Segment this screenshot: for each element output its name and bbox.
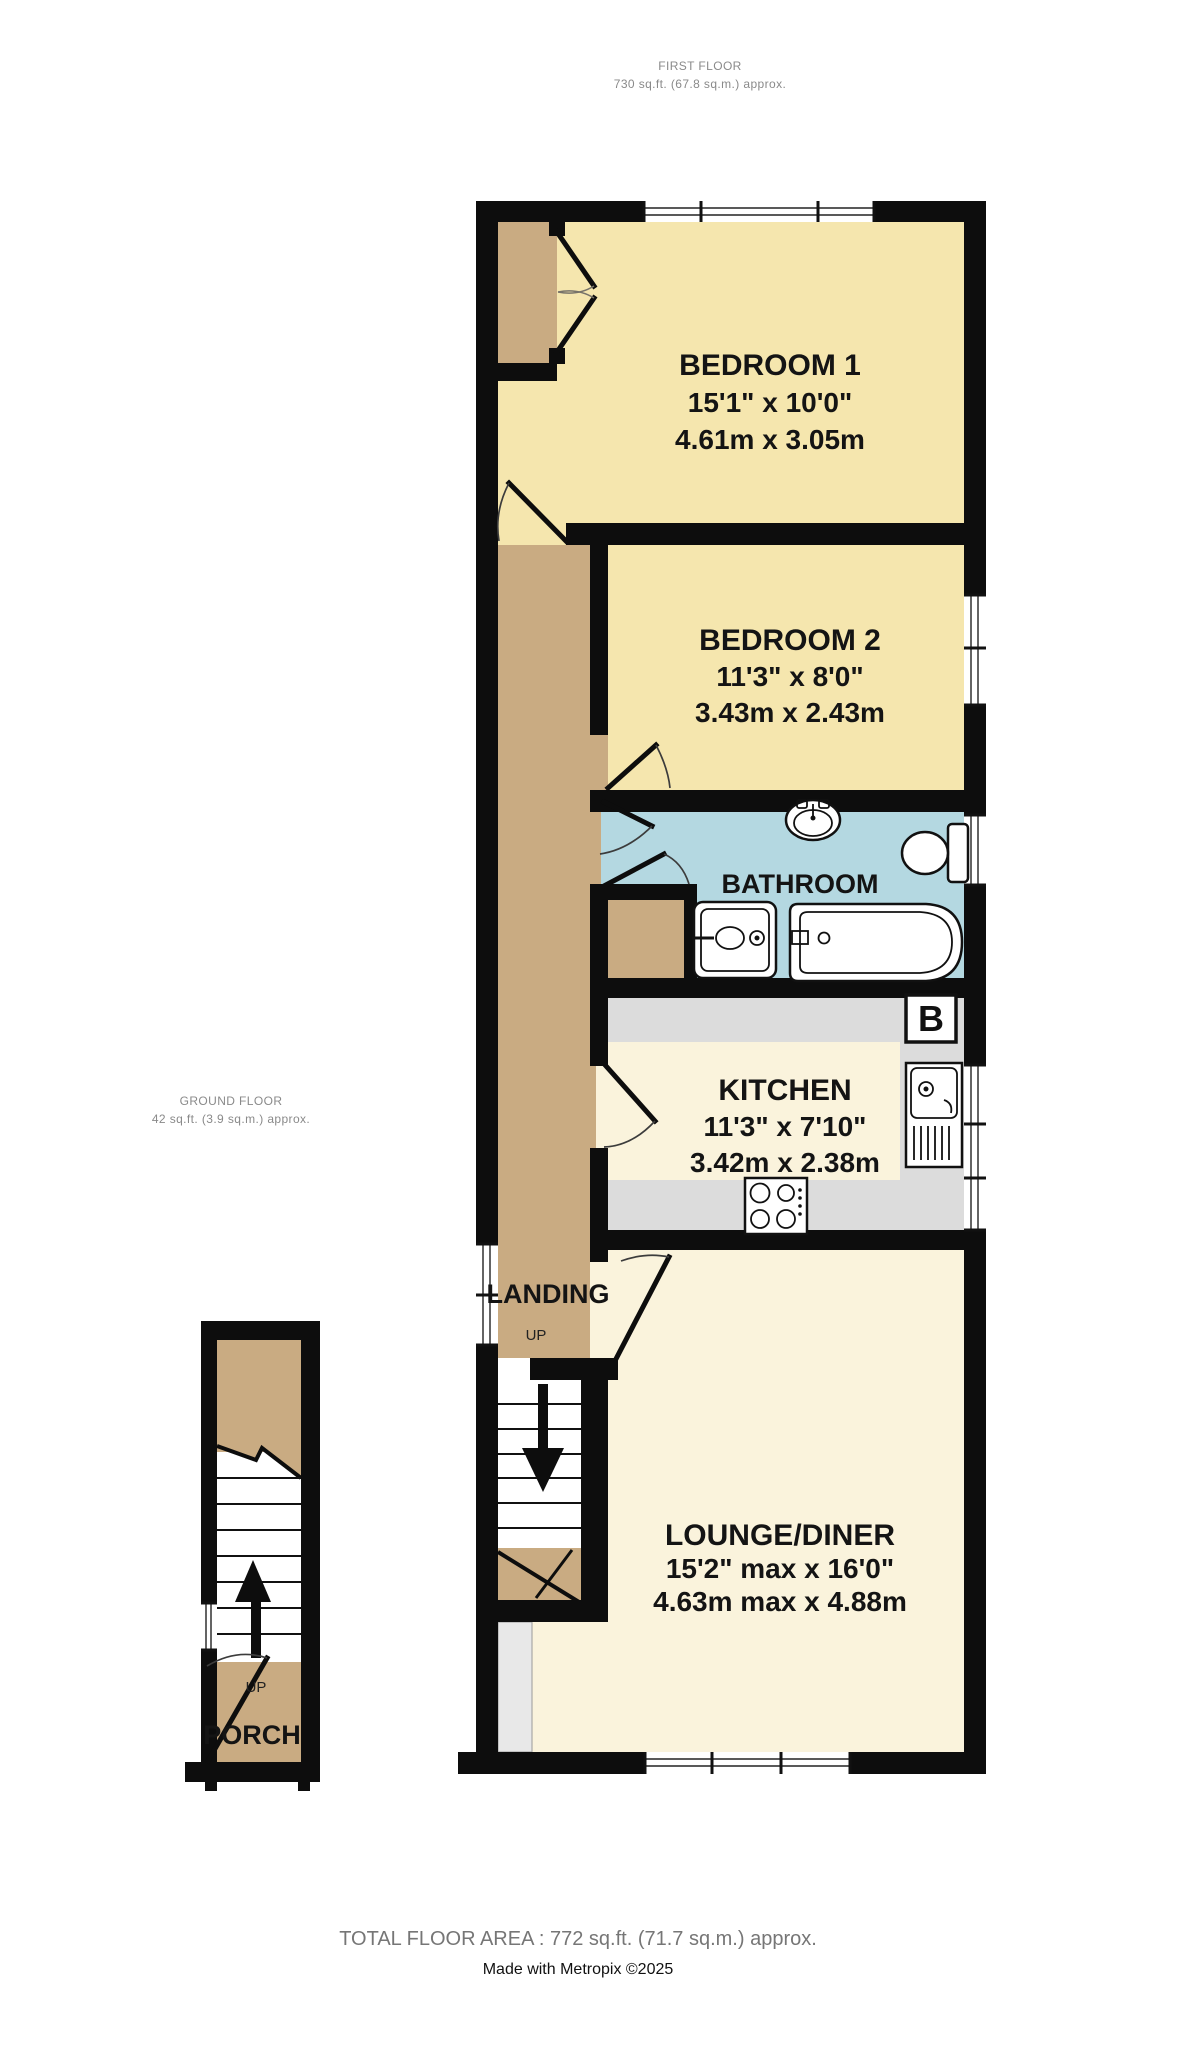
first-floor-plan: B bbox=[458, 201, 986, 1774]
bathroom-cupboard bbox=[608, 898, 684, 978]
stairs-first-floor bbox=[498, 1380, 581, 1602]
porch-window bbox=[201, 1603, 217, 1650]
kitchen-window bbox=[964, 1065, 986, 1230]
porch-label: PORCH bbox=[203, 1720, 301, 1750]
boiler-box: B bbox=[906, 995, 956, 1042]
lounge-doorway-floor bbox=[590, 1262, 608, 1358]
bedroom2-label: BEDROOM 2 bbox=[699, 624, 881, 657]
metropix-credit: Made with Metropix ©2025 bbox=[483, 1961, 674, 1978]
boiler-label: B bbox=[918, 998, 944, 1039]
landing-wall-upper bbox=[590, 545, 608, 735]
pedestal-sink-icon bbox=[786, 800, 840, 840]
floorplan-page: B bbox=[0, 0, 1185, 2048]
bedroom1-imperial: 15'1" x 10'0" bbox=[688, 387, 852, 418]
bathroom-label: BATHROOM bbox=[722, 869, 879, 899]
stairs-bottom-wall bbox=[476, 1600, 608, 1622]
bed1-bed2-wall bbox=[566, 523, 964, 545]
bedroom2-metric: 3.43m x 2.43m bbox=[695, 697, 885, 728]
bedroom2-bottom-wall bbox=[590, 790, 964, 812]
bedroom2-window bbox=[964, 595, 986, 705]
stairs-right-wall bbox=[581, 1380, 608, 1600]
kitchen-doorway-floor2 bbox=[590, 1066, 596, 1148]
bathroom-doorway-floor bbox=[590, 812, 601, 884]
lounge-floor bbox=[608, 1250, 964, 1752]
bedroom2-imperial: 11'3" x 8'0" bbox=[716, 661, 863, 692]
wash-basin-icon bbox=[692, 902, 776, 978]
closet-bottom-wall bbox=[476, 363, 557, 381]
lounge-recess bbox=[498, 1622, 532, 1752]
kitchen-metric: 3.42m x 2.38m bbox=[690, 1147, 880, 1178]
first-floor-caption: FIRST FLOOR bbox=[658, 59, 742, 73]
first-floor-area: 730 sq.ft. (67.8 sq.m.) approx. bbox=[614, 77, 786, 91]
lounge-window bbox=[645, 1752, 850, 1774]
bedroom1-window bbox=[644, 201, 874, 222]
kitchen-imperial: 11'3" x 7'10" bbox=[704, 1111, 867, 1142]
ground-floor-area: 42 sq.ft. (3.9 sq.m.) approx. bbox=[152, 1112, 310, 1126]
ground-floor-caption: GROUND FLOOR bbox=[180, 1094, 283, 1108]
stairs-top-wall bbox=[530, 1358, 618, 1380]
porch-up-label: UP bbox=[246, 1679, 267, 1696]
lounge-label: LOUNGE/DINER bbox=[665, 1519, 895, 1552]
bedroom1-closet bbox=[498, 222, 557, 363]
kitchen-label: KITCHEN bbox=[718, 1074, 851, 1107]
total-floor-area: TOTAL FLOOR AREA : 772 sq.ft. (71.7 sq.m… bbox=[339, 1928, 817, 1950]
lounge-metric: 4.63m max x 4.88m bbox=[653, 1586, 907, 1617]
bedroom2-doorway-floor bbox=[590, 735, 608, 790]
bedroom1-metric: 4.61m x 3.05m bbox=[675, 424, 865, 455]
lounge-imperial: 15'2" max x 16'0" bbox=[666, 1553, 894, 1584]
landing-floor bbox=[498, 545, 590, 1358]
stove-icon bbox=[745, 1178, 807, 1234]
bathtub-icon bbox=[790, 904, 962, 981]
landing-label: LANDING bbox=[487, 1279, 610, 1309]
kitchen-doorway-floor bbox=[596, 1066, 610, 1148]
ground-floor-plan: UP PORCH bbox=[185, 1321, 320, 1791]
landing-up-label: UP bbox=[526, 1327, 547, 1344]
bedroom1-label: BEDROOM 1 bbox=[679, 349, 861, 382]
kitchen-sink-icon bbox=[906, 1063, 962, 1167]
